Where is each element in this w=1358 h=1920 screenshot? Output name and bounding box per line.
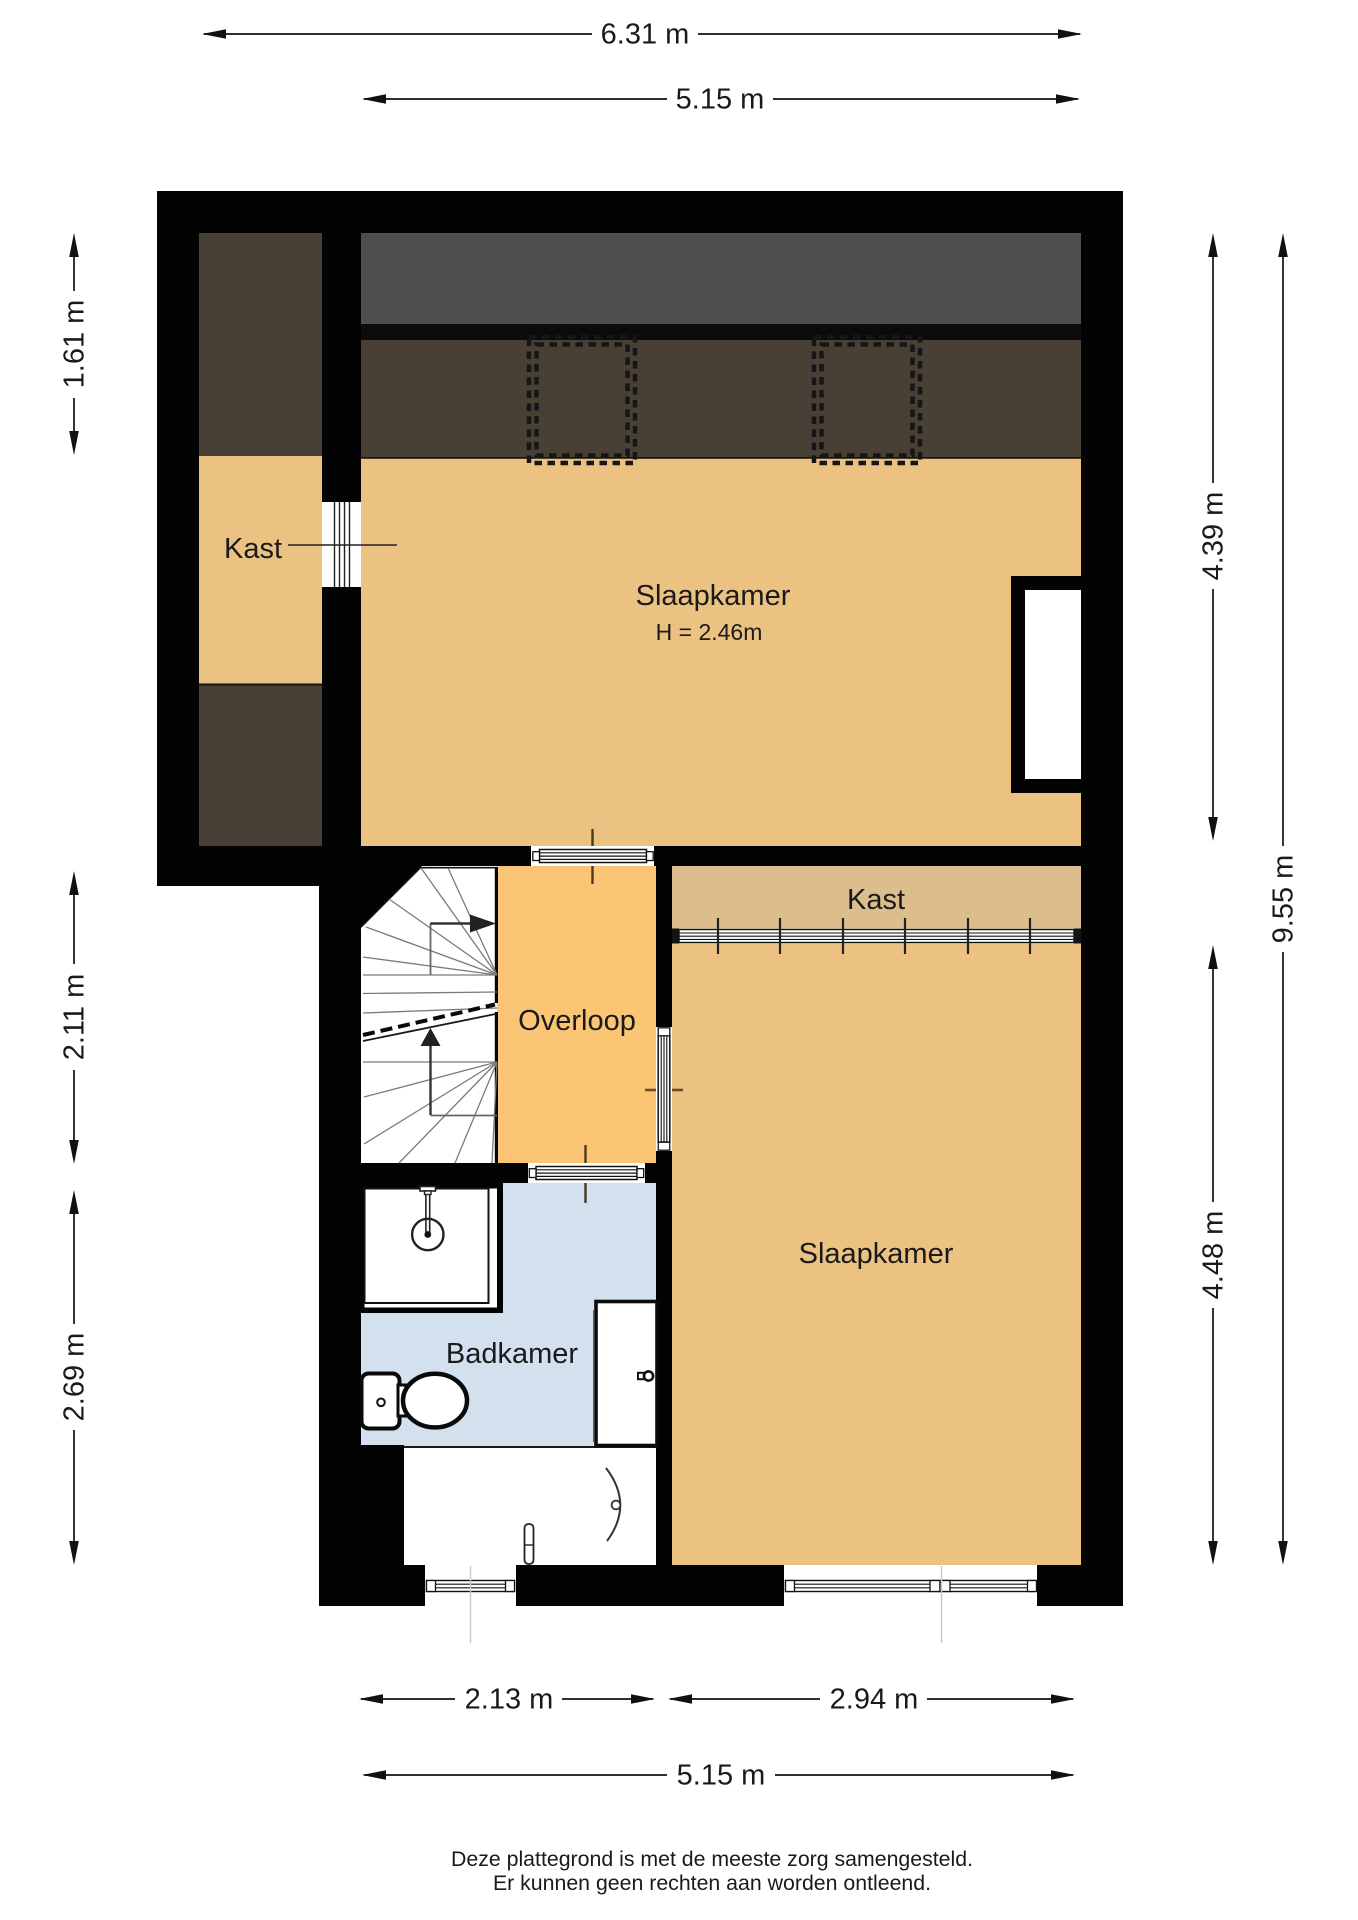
svg-text:9.55 m: 9.55 m bbox=[1268, 855, 1300, 944]
svg-text:Kast: Kast bbox=[847, 884, 905, 916]
svg-text:6.31 m: 6.31 m bbox=[601, 19, 690, 51]
svg-text:Overloop: Overloop bbox=[518, 1005, 636, 1037]
svg-text:Slaapkamer: Slaapkamer bbox=[636, 580, 791, 612]
svg-text:5.15 m: 5.15 m bbox=[677, 1760, 766, 1792]
svg-text:H = 2.46m: H = 2.46m bbox=[656, 619, 763, 645]
svg-text:2.94 m: 2.94 m bbox=[830, 1684, 919, 1716]
svg-text:Er kunnen geen rechten aan wor: Er kunnen geen rechten aan worden ontlee… bbox=[493, 1871, 931, 1895]
svg-text:2.69 m: 2.69 m bbox=[59, 1333, 91, 1422]
svg-text:2.13 m: 2.13 m bbox=[465, 1684, 554, 1716]
svg-text:Badkamer: Badkamer bbox=[446, 1338, 579, 1370]
svg-text:Slaapkamer: Slaapkamer bbox=[799, 1238, 954, 1270]
svg-text:1.61 m: 1.61 m bbox=[59, 300, 91, 389]
svg-text:Kast: Kast bbox=[224, 533, 282, 565]
svg-text:2.11 m: 2.11 m bbox=[59, 974, 91, 1061]
svg-text:4.48 m: 4.48 m bbox=[1198, 1211, 1230, 1300]
svg-text:5.15 m: 5.15 m bbox=[676, 84, 765, 116]
svg-text:Deze plattegrond is met de mee: Deze plattegrond is met de meeste zorg s… bbox=[451, 1847, 973, 1871]
svg-text:4.39 m: 4.39 m bbox=[1198, 492, 1230, 581]
